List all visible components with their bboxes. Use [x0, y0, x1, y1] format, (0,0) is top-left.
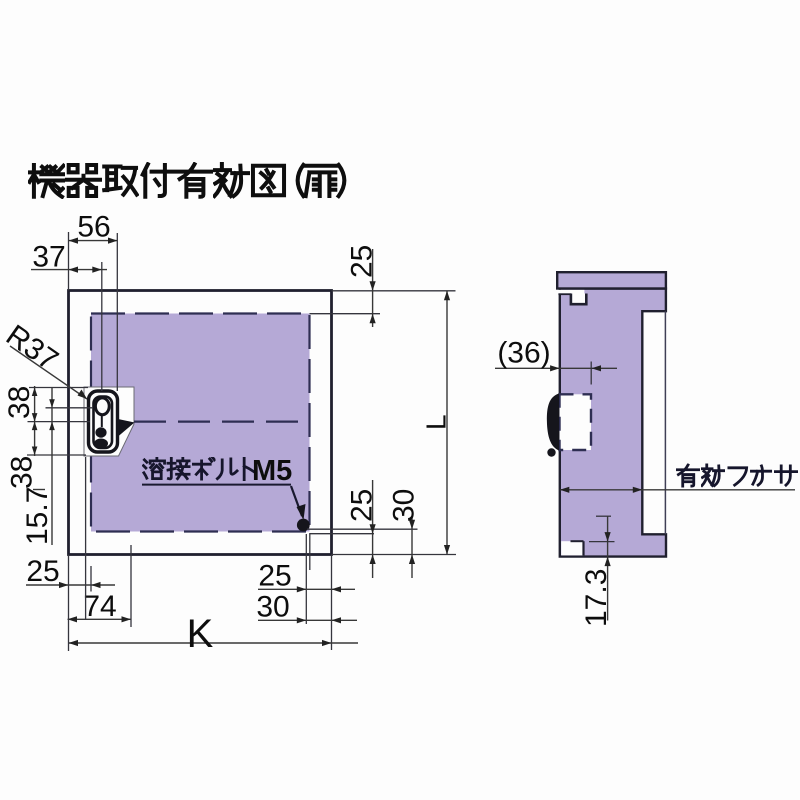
svg-text:38: 38	[3, 386, 36, 419]
svg-text:K: K	[187, 612, 214, 656]
svg-text:30: 30	[388, 489, 421, 522]
svg-text:25: 25	[258, 560, 291, 593]
svg-text:25: 25	[26, 555, 59, 588]
svg-text:15.7: 15.7	[21, 487, 54, 545]
svg-text:(36): (36)	[497, 337, 550, 370]
svg-text:74: 74	[83, 590, 116, 623]
svg-text:25: 25	[346, 245, 379, 278]
svg-text:38: 38	[6, 456, 39, 489]
svg-text:30: 30	[256, 591, 289, 624]
svg-text:25: 25	[346, 489, 379, 522]
svg-text:L: L	[421, 414, 452, 430]
svg-text:M5: M5	[252, 455, 292, 487]
svg-text:37: 37	[32, 240, 65, 273]
svg-text:56: 56	[77, 211, 110, 244]
svg-text:17.3: 17.3	[580, 569, 613, 627]
